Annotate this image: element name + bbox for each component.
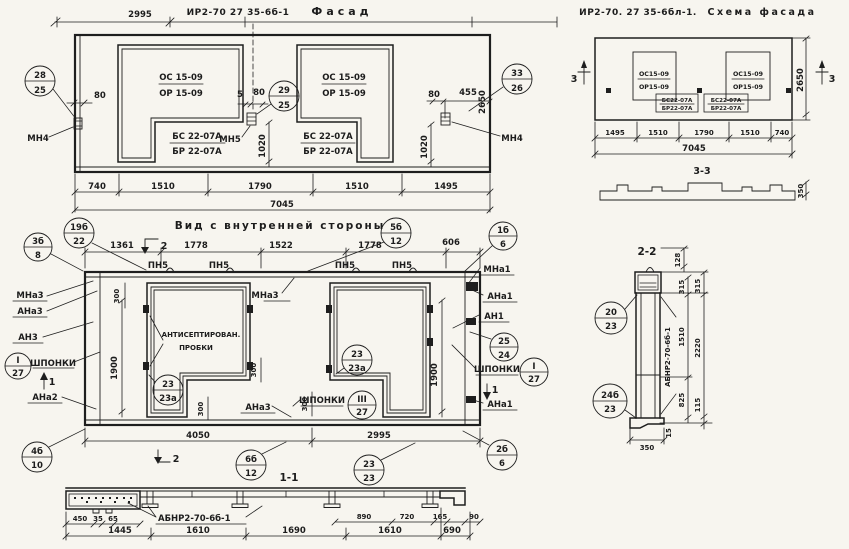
win2-label-bot: ОР 15-09 [322,89,366,99]
bdim-1610a: 1610 [186,526,210,536]
svg-text:1: 1 [49,377,56,388]
drawing-canvas: 2995 ИР2-70 27 35-6б-1 Фасад ОС 15-09 ОР… [0,0,849,549]
svg-text:26: 26 [511,84,523,94]
facade-top-line [51,17,557,27]
dim-740: 740 [88,182,106,192]
sdim-1790: 1790 [694,129,714,137]
dim-7045: 7045 [270,200,294,210]
block1-label-top: БС 22-07А [172,132,222,142]
svg-text:22: 22 [73,237,85,247]
svg-text:23: 23 [351,350,363,360]
svg-text:27: 27 [356,408,368,418]
facade-title: Фасад [311,5,372,18]
dim-315-b: 315 [694,279,702,294]
svg-text:I: I [16,356,19,366]
scheme-dim-350: 350 [797,184,805,199]
sec22-bottom-shoe [630,418,664,428]
pn5-label-1: ПН5 [148,261,168,271]
block1-label-bot: БР 22-07А [172,147,222,157]
dim-1790: 1790 [248,182,272,192]
callout-I-27-right: I 27 [520,358,548,386]
scheme-anchor-dots [606,88,791,93]
ana2-label: АНа2 [32,393,57,403]
dim-2650-facade: 2650 [478,90,488,114]
leader [242,126,250,137]
svg-text:3: 3 [571,74,578,85]
callout-23-23: 23 23 [354,443,415,485]
svg-text:1б: 1б [497,225,509,236]
svg-text:6б: 6б [245,454,257,465]
svg-text:28: 28 [34,71,46,81]
dim-80-left: 80 [94,91,106,101]
callout-20-23: 20 23 [595,295,637,334]
idim-1522: 1522 [269,241,293,251]
sec22-body-inner [636,293,660,418]
scheme-block1-top: БС22-07А [662,98,693,104]
scheme-win2-bot: ОР15-09 [733,84,763,91]
section-1-1-title: 1-1 [280,472,299,484]
facade-view: 2995 ИР2-70 27 35-6б-1 Фасад ОС 15-09 ОР… [25,5,557,213]
callout-4b-10: 4б 10 [22,429,85,472]
mn4-right-label: МН4 [501,134,523,144]
scheme-block1-bot: БР22-07А [662,106,693,112]
section-mark-3-right: 3 [816,60,835,85]
ana3-left-label: АНа3 [17,307,42,317]
anchor-mn5-mid [247,113,256,125]
svg-text:23: 23 [363,460,375,470]
sec11-joints [192,491,384,497]
callout-I-27-left: I 27 [5,353,31,379]
dim-128: 128 [674,253,682,268]
dim-2220: 2220 [694,338,702,358]
facade-code: ИР2-70 27 35-6б-1 [187,7,290,18]
svg-text:25: 25 [34,86,46,96]
section-mark-3-left: 3 [571,60,590,85]
idim-606: 606 [442,238,460,248]
dim-300-a: 300 [113,289,121,304]
idim-2995: 2995 [367,431,391,441]
rebar-dots [74,497,132,503]
dim-300-c: 300 [197,402,205,417]
dim-80-left-line [67,100,92,106]
bdim-1445: 1445 [108,526,132,536]
svg-text:12: 12 [390,237,402,247]
mna3-mid-label: МНа3 [251,291,278,301]
svg-text:23: 23 [605,322,617,332]
svg-text:27: 27 [528,375,540,385]
scheme-win1-top: ОС15-09 [639,71,669,78]
svg-text:29: 29 [278,86,290,96]
dim-1020-right: 1020 [420,135,430,159]
an1-label: АН1 [484,312,504,322]
facade-dim-2995: 2995 [128,10,152,20]
section-2-2-title: 2-2 [638,246,657,258]
svg-text:23: 23 [604,405,616,415]
dim-825: 825 [678,393,686,408]
svg-text:5б: 5б [390,222,402,233]
sdim-1495: 1495 [605,129,625,137]
facade-window-2 [297,45,393,162]
frame-tabs [143,305,433,373]
dim-1020-left: 1020 [258,134,268,158]
section-mark-2-bottom: 2 [154,450,179,465]
bdim-690: 690 [443,526,461,536]
dim-350-sec22: 350 [640,444,655,452]
anchor-mn4-right [441,113,450,125]
dim-80-mid: 80 [253,88,265,98]
svg-text:6: 6 [500,240,506,250]
beam-label-2-2: АБНР2-70-6б-1 [664,327,672,387]
dim-1510: 1510 [678,327,686,347]
mn4-left-label: МН4 [27,134,49,144]
inner-title: Вид с внутренней стороны [175,220,386,232]
sec22-dim-128-line [661,246,708,272]
mn5-label: МН5 [219,135,241,145]
sdim-740: 740 [775,129,790,137]
scheme-win1-bot: ОР15-09 [639,84,669,91]
dim-1900-right-line [439,298,445,417]
sec22-top-block-inner [638,275,658,290]
dim-300-lines [125,283,312,420]
shponki-left-label: ШПОНКИ [30,359,76,369]
section-3-3-title: 3-3 [693,166,710,177]
sec11-left-block-inner [69,494,137,506]
callout-24b-23: 24б 23 [593,384,636,418]
dim-80-right: 80 [428,90,440,100]
sdim-890: 890 [357,513,372,521]
idim-4050: 4050 [186,431,210,441]
scheme-block2-top: БС22-07А [711,98,742,104]
sec11-ribs [142,491,438,508]
idim-1778b: 1778 [358,241,382,251]
svg-text:6: 6 [499,459,505,469]
win1-label-bot: ОР 15-09 [159,89,203,99]
bdim-1610b: 1610 [378,526,402,536]
leader [49,127,73,137]
svg-text:2: 2 [173,454,180,465]
dim-300-b: 300 [250,363,258,378]
callout-2b-6: 2б 6 [463,431,517,470]
block2-label-top: БС 22-07А [303,132,353,142]
win1-label-top: ОС 15-09 [159,73,203,83]
inner-window-2-frame [334,287,426,413]
dim-15: 15 [665,428,673,438]
callout-1b-6: 1б 6 [465,222,517,271]
beam-label-1-1: АБНР2-70-6б-1 [158,513,231,524]
sdim-1510a: 1510 [648,129,668,137]
pn5-label-4: ПН5 [392,261,412,271]
scheme-dim-2650: 2650 [796,68,806,92]
callout-III-27: III 27 [348,391,376,419]
callout-6b-12: 6б 12 [236,442,286,480]
sec22-top-block-lines [640,283,656,287]
section-3-3-profile [600,183,795,200]
section-mark-1-left: 1 [40,372,55,389]
svg-text:25: 25 [498,337,510,347]
callout-28-25: 28 25 [25,66,76,119]
block2-label-bot: БР 22-07А [303,147,353,157]
svg-text:I: I [532,362,535,372]
antiseptic-label-1: АНТИСЕПТИРОВАН. [162,331,241,339]
sec22-dim-350-line [627,428,667,444]
sdim-1510b: 1510 [740,129,760,137]
scheme-win2-top: ОС15-09 [733,71,763,78]
svg-text:23а: 23а [348,364,366,374]
shponki-mid-label: ШПОНКИ [299,396,345,406]
svg-text:8: 8 [35,251,41,261]
sdim-35: 35 [93,515,103,523]
svg-text:23: 23 [363,474,375,484]
mna3-left-label: МНа3 [16,291,43,301]
sdim-65: 65 [108,515,118,523]
svg-text:23а: 23а [159,394,177,404]
section-2-2: 2-2 АБНР2-70-6б-1 128 315 1510 825 315 2… [593,246,712,452]
antiseptic-label-2: ПРОБКИ [179,344,213,352]
scheme-block2-bot: БР22-07А [711,106,742,112]
win2-label-top: ОС 15-09 [322,73,366,83]
ana1-upper-label: АНа1 [487,292,512,302]
scheme-view: ИР2-70. 27 35-6бл-1. Схема фасада ОС15-0… [571,7,836,200]
callout-25-24: 25 24 [470,332,518,361]
svg-text:2: 2 [161,241,168,252]
dim-1900-right: 1900 [430,363,440,387]
svg-text:20: 20 [605,308,617,318]
antiseptic-leaders [150,316,163,366]
dim-455: 455 [459,88,477,98]
sdim-165: 165 [433,513,448,521]
dim-115: 115 [694,398,702,413]
dim-1510a: 1510 [151,182,175,192]
pn5-label-3: ПН5 [335,261,355,271]
sdim-90: 90 [469,513,479,521]
sdim-7045: 7045 [682,144,706,154]
svg-text:3: 3 [829,74,836,85]
ana1-lower-label: АНа1 [487,400,512,410]
svg-text:2б: 2б [496,444,508,455]
inner-panel-outline [85,272,480,425]
scheme-code: ИР2-70. 27 35-6бл-1. [579,7,697,18]
idim-1361: 1361 [110,241,134,251]
sec11-right-block [440,491,465,505]
svg-text:19б: 19б [70,222,88,233]
section-mark-1-right: 1 [483,384,498,400]
leader [452,122,500,136]
sdim-720: 720 [400,513,415,521]
svg-text:III: III [357,395,367,405]
callout-23-23a-right: 23 23а [336,345,372,375]
idim-1778a: 1778 [184,241,208,251]
svg-text:24: 24 [498,351,510,361]
dim-1900-left: 1900 [110,356,120,380]
shponki-right-label: ШПОНКИ [474,365,520,375]
dim-1495: 1495 [434,182,458,192]
inner-panel-inner-lines [85,272,480,425]
inner-view: Вид с внутренней стороны 1361 1778 1522 … [5,218,548,485]
svg-text:4б: 4б [31,446,43,457]
dim-315-a: 315 [678,280,686,295]
sdim-450: 450 [73,515,88,523]
svg-text:27: 27 [12,369,24,379]
pn5-label-2: ПН5 [209,261,229,271]
scheme-title: Схема фасада [708,7,817,18]
svg-text:12: 12 [245,469,257,479]
svg-text:23: 23 [162,380,174,390]
blueprint-sheet: 2995 ИР2-70 27 35-6б-1 Фасад ОС 15-09 ОР… [0,0,849,549]
dim-1510b: 1510 [345,182,369,192]
svg-text:24б: 24б [601,390,619,401]
mna1-label: МНа1 [483,265,510,275]
svg-text:3б: 3б [32,236,44,247]
ana3-mid-label: АНа3 [245,403,270,413]
svg-text:33: 33 [511,69,523,79]
section-1-1: АБНР2-70-6б-1 450 35 65 890 720 165 90 1… [63,488,483,540]
svg-text:1: 1 [492,385,499,396]
an3-label: АН3 [18,333,38,343]
svg-text:25: 25 [278,101,290,111]
svg-text:10: 10 [31,461,43,471]
sec22-body [636,293,660,418]
bdim-1690: 1690 [282,526,306,536]
right-edge-anchors [466,282,478,403]
dim-5: 5 [237,90,243,100]
